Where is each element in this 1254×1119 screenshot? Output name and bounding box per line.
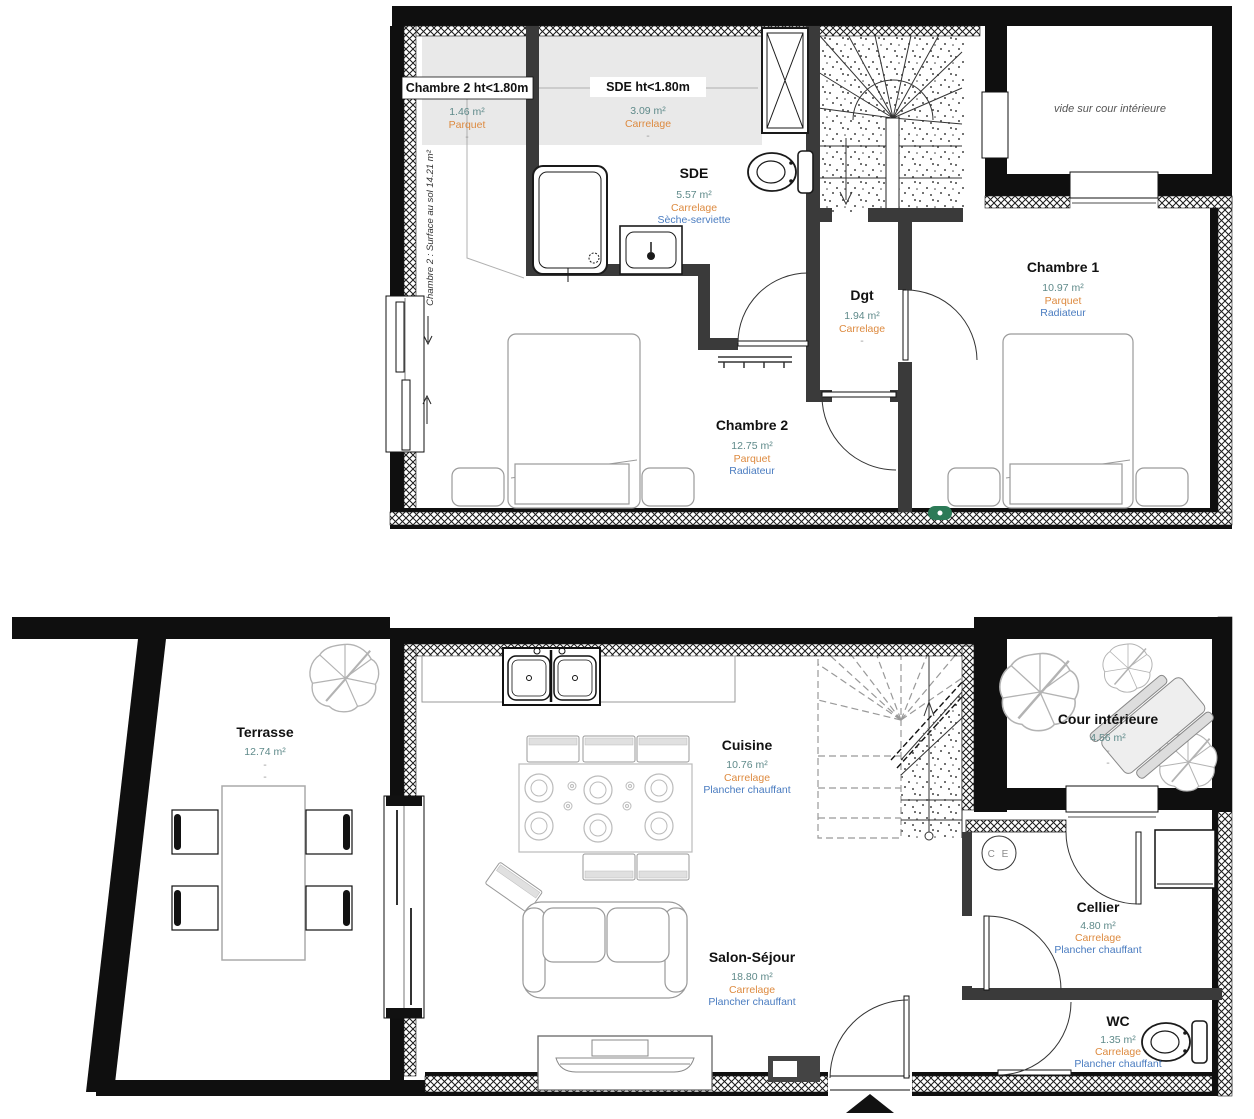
terrace-chair (306, 886, 352, 930)
room-name: Dgt (850, 287, 874, 303)
tv-stand (538, 1036, 712, 1090)
room-label-cellier: Cellier 4.80 m² Carrelage Plancher chauf… (1054, 899, 1141, 956)
door-cellier (1066, 832, 1141, 904)
ventilation-shaft (762, 28, 808, 133)
room-note: - (646, 130, 650, 142)
terrace-chair (306, 810, 352, 854)
staircase-upper (818, 30, 964, 212)
room-label-cuisine: Cuisine 10.76 m² Carrelage Plancher chau… (703, 737, 790, 796)
floor-plan: Chambre 2 ht<1.80m 1.46 m² Parquet - SDE… (0, 0, 1254, 1114)
door-chambre2 (822, 392, 896, 470)
room-area: 10.76 m² (726, 759, 768, 771)
bed-chambre2 (508, 334, 640, 508)
room-name: Cellier (1077, 899, 1120, 915)
door-chambre1 (903, 290, 977, 360)
room-area: 1.35 m² (1100, 1034, 1136, 1046)
door-cellier-salon (984, 916, 1061, 990)
floor-plan-page: Chambre 2 ht<1.80m 1.46 m² Parquet - SDE… (0, 0, 1254, 1114)
room-name: Salon-Séjour (709, 949, 796, 965)
room-name: Chambre 2 (716, 417, 789, 433)
room-floor: Carrelage (671, 202, 717, 214)
room-note: Sèche-serviette (658, 214, 731, 226)
room-floor: - (263, 759, 267, 771)
room-floor: Carrelage (729, 984, 775, 996)
bay-window (384, 796, 424, 1018)
bush (310, 644, 379, 712)
room-note: Plancher chauffant (1054, 944, 1141, 956)
radiator-marker (928, 506, 952, 520)
room-floor: Carrelage (1095, 1046, 1141, 1058)
room-label-chambre2: Chambre 2 12.75 m² Parquet Radiateur (716, 417, 789, 477)
bed-chambre1 (1003, 334, 1133, 508)
towel-radiator (718, 357, 792, 368)
door-sde (738, 273, 808, 346)
room-label-terrasse: Terrasse 12.74 m² - - (236, 724, 294, 783)
room-note: - (860, 335, 864, 347)
bathtub (533, 166, 607, 282)
room-note: Radiateur (1040, 307, 1086, 319)
cellier-shelf (1155, 830, 1215, 888)
ground-floor: C E Terrasse 12.74 m² - - Cuisine 10.76 … (12, 617, 1232, 1113)
kitchen-sink (503, 648, 600, 705)
room-floor: Parquet (734, 453, 771, 465)
room-area: 12.75 m² (731, 440, 773, 452)
room-floor: - (1106, 745, 1110, 757)
room-area: 5.57 m² (676, 189, 712, 201)
room-name: SDE ht<1.80m (606, 80, 690, 94)
room-label-sde: SDE 5.57 m² Carrelage Sèche-serviette (658, 165, 731, 226)
terrace-table (222, 786, 305, 960)
salon-cabinet (768, 1056, 820, 1082)
nightstand (642, 468, 694, 506)
room-note: Radiateur (729, 465, 775, 477)
chambre1-window (1070, 172, 1158, 198)
room-name: Chambre 2 ht<1.80m (406, 81, 529, 95)
room-name: SDE (680, 165, 709, 181)
room-label-salon: Salon-Séjour 18.80 m² Carrelage Plancher… (708, 949, 795, 1008)
room-name: Terrasse (236, 724, 294, 740)
staircase-ground (818, 648, 970, 840)
room-area: 1.94 m² (844, 310, 880, 322)
nightstand (452, 468, 504, 506)
room-floor: Carrelage (724, 772, 770, 784)
room-name: Cour intérieure (1058, 711, 1159, 727)
room-note: Plancher chauffant (703, 784, 790, 796)
room-note: Plancher chauffant (1074, 1058, 1161, 1070)
water-heater: C E (982, 836, 1016, 870)
room-note: Plancher chauffant (708, 996, 795, 1008)
room-area: 4.80 m² (1080, 920, 1116, 932)
bush (1103, 644, 1152, 692)
room-floor: Parquet (1045, 295, 1082, 307)
room-area: 10.97 m² (1042, 282, 1084, 294)
toilet-upper-icon (748, 151, 813, 193)
room-floor: Carrelage (1075, 932, 1121, 944)
room-label-dgt: Dgt 1.94 m² Carrelage - (839, 287, 885, 347)
window-chambre2 (386, 296, 432, 452)
room-floor: Carrelage (839, 323, 885, 335)
room-name: WC (1106, 1013, 1129, 1029)
nightstand (1136, 468, 1188, 506)
washbasin (620, 226, 682, 274)
room-note: - (263, 771, 267, 783)
void-label: vide sur cour intérieure (1054, 103, 1166, 115)
toilet-wc-icon (1142, 1021, 1207, 1063)
surface-note: Chambre 2 : Surface au sol 14.21 m² (425, 149, 436, 306)
room-name: Chambre 1 (1027, 259, 1100, 275)
room-label-chambre1: Chambre 1 10.97 m² Parquet Radiateur (1027, 259, 1100, 319)
cour-window (1066, 786, 1158, 812)
door-wc (998, 1002, 1071, 1075)
entrance-door (828, 996, 912, 1113)
upper-floor: Chambre 2 ht<1.80m 1.46 m² Parquet - SDE… (386, 6, 1232, 529)
room-area: 12.74 m² (244, 746, 286, 758)
terrace-chair (172, 810, 218, 854)
room-area: 4.56 m² (1090, 732, 1126, 744)
entrance-arrow-icon (846, 1094, 894, 1113)
room-area: 18.80 m² (731, 971, 773, 983)
room-name: Cuisine (722, 737, 773, 753)
dining-table (485, 736, 692, 913)
room-note: - (465, 131, 469, 143)
room-area: 3.09 m² (630, 105, 666, 117)
room-floor: Parquet (449, 119, 486, 131)
void-window (982, 92, 1008, 158)
room-area: 1.46 m² (449, 106, 485, 118)
terrace-chair (172, 886, 218, 930)
room-floor: Carrelage (625, 118, 671, 130)
sofa (523, 902, 687, 998)
water-heater-label: C E (988, 849, 1011, 860)
nightstand (948, 468, 1000, 506)
room-note: - (1106, 757, 1110, 769)
